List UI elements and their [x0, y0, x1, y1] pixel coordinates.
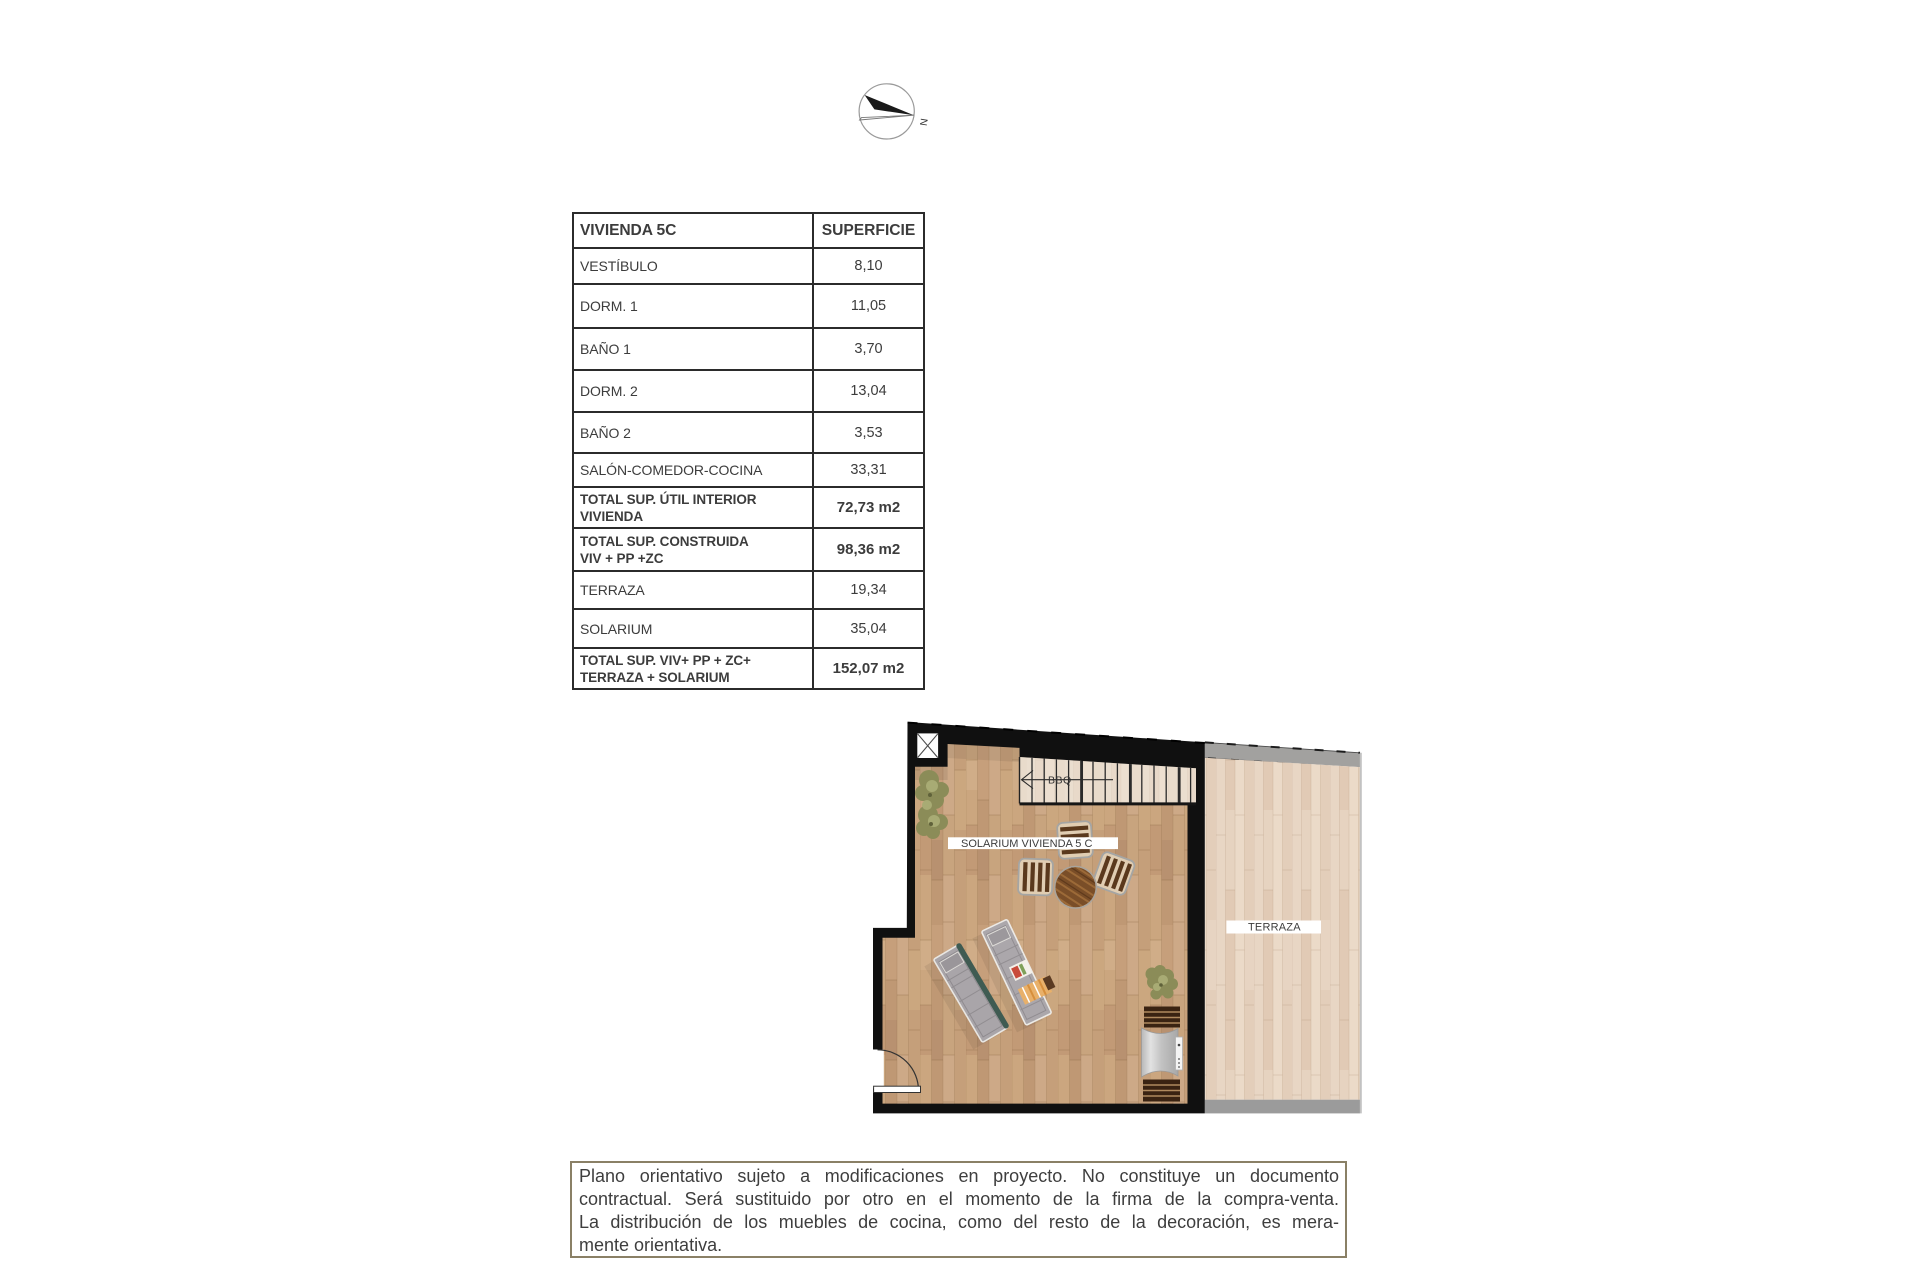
svg-text:BBQ: BBQ: [1048, 775, 1072, 787]
svg-text:TERRAZA: TERRAZA: [1248, 922, 1301, 934]
svg-text:N: N: [917, 118, 929, 127]
svg-text:SOLARIUM VIVIENDA 5 C: SOLARIUM VIVIENDA 5 C: [961, 838, 1092, 850]
